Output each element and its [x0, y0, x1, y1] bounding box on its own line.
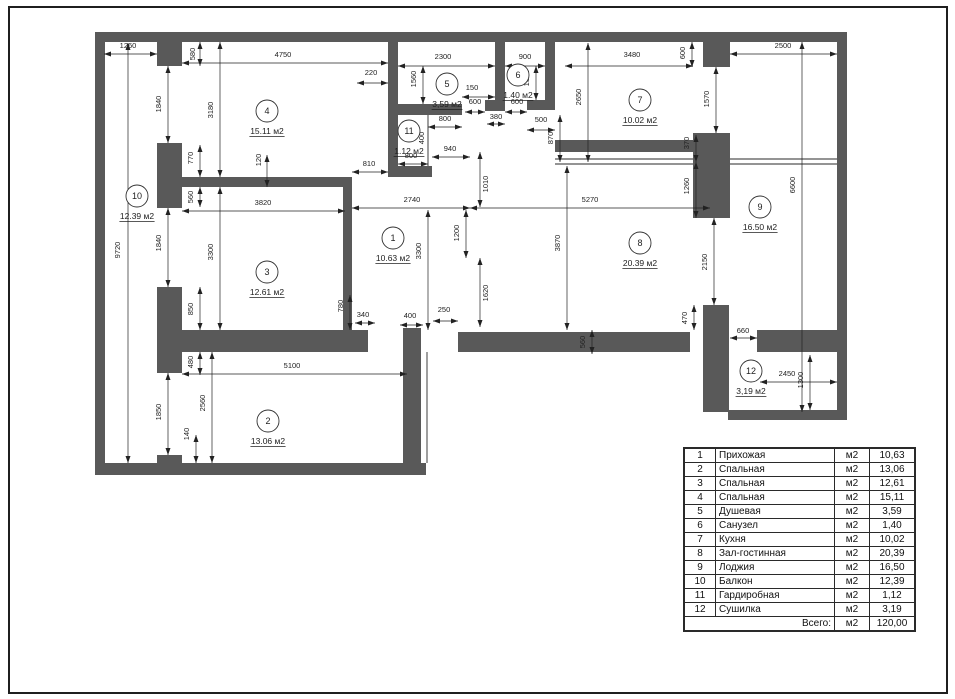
dimension-label: 2740 [404, 195, 421, 204]
room-area-label: 20.39 м2 [623, 258, 657, 268]
dimension-label: 6600 [788, 177, 797, 194]
room-name-cell: Гардиробная [716, 589, 835, 603]
legend-total-unit: м2 [835, 617, 870, 632]
room-number: 1 [390, 233, 395, 243]
dimension-label: 220 [365, 68, 378, 77]
room-unit-cell: м2 [835, 477, 870, 491]
dimension-label: 9720 [113, 242, 122, 259]
dimension-label: 780 [336, 300, 345, 313]
dimension-label: 600 [678, 47, 687, 60]
dimension-label: 3300 [206, 244, 215, 261]
room-unit-cell: м2 [835, 505, 870, 519]
room-name-cell: Балкон [716, 575, 835, 589]
room-area-label: 10.63 м2 [376, 253, 410, 263]
room-number: 7 [637, 95, 642, 105]
dimension-label: 340 [357, 310, 370, 319]
room-number-cell: 4 [684, 491, 716, 505]
dimension-label: 2650 [574, 89, 583, 106]
dimension-label: 870 [546, 132, 555, 145]
room-number: 9 [757, 202, 762, 212]
dimension-label: 600 [469, 97, 482, 106]
room-unit-cell: м2 [835, 561, 870, 575]
room-number: 6 [515, 70, 520, 80]
room-number-cell: 9 [684, 561, 716, 575]
wall [693, 133, 730, 218]
dimension-label: 480 [186, 356, 195, 369]
dimension-label: 3300 [414, 243, 423, 260]
wall [95, 32, 847, 42]
dimension-label: 470 [680, 312, 689, 325]
table-row: 9Лоджиям216,50 [684, 561, 915, 575]
dimension-label: 5270 [582, 195, 599, 204]
dimension-label: 3820 [255, 198, 272, 207]
dimension-label: 850 [186, 303, 195, 316]
wall [458, 332, 690, 352]
wall [95, 32, 105, 475]
dimension-label: 250 [438, 305, 451, 314]
room-area-label: 3,59 м2 [432, 99, 462, 109]
table-row: 11Гардиробнаям21,12 [684, 589, 915, 603]
room-area-label: 12.39 м2 [120, 211, 154, 221]
dimension-label: 3870 [553, 235, 562, 252]
room-number: 10 [132, 191, 142, 201]
dimension-label: 2150 [700, 254, 709, 271]
room-number: 4 [264, 106, 269, 116]
room-number-cell: 10 [684, 575, 716, 589]
room-unit-cell: м2 [835, 519, 870, 533]
dimension-label: 120 [254, 154, 263, 167]
table-row: 3Спальнаям212,61 [684, 477, 915, 491]
table-row: 5Душеваям23,59 [684, 505, 915, 519]
room-name-cell: Зал-гостинная [716, 547, 835, 561]
dimension-label: 4750 [275, 50, 292, 59]
wall [388, 166, 432, 177]
room-marker: 820.39 м2 [622, 232, 657, 269]
dimension-label: 1560 [409, 71, 418, 88]
room-number: 11 [404, 126, 413, 136]
room-unit-cell: м2 [835, 463, 870, 477]
room-name-cell: Сушилка [716, 603, 835, 617]
table-row: 1Прихожаям210,63 [684, 448, 915, 463]
room-area-label: 10.02 м2 [623, 115, 657, 125]
wall [703, 42, 730, 67]
room-number-cell: 5 [684, 505, 716, 519]
room-name-cell: Спальная [716, 491, 835, 505]
room-number-cell: 3 [684, 477, 716, 491]
room-number-cell: 6 [684, 519, 716, 533]
room-area-cell: 16,50 [870, 561, 916, 575]
room-marker: 53,59 м2 [432, 73, 463, 110]
room-area-cell: 13,06 [870, 463, 916, 477]
wall [95, 463, 426, 475]
dimension-label: 900 [519, 52, 532, 61]
room-name-cell: Прихожая [716, 448, 835, 463]
room-marker: 312.61 м2 [249, 261, 284, 298]
dimension-label: 370 [682, 137, 691, 150]
wall [157, 330, 368, 352]
dimension-label: 560 [186, 191, 195, 204]
dimension-label: 580 [188, 48, 197, 61]
room-unit-cell: м2 [835, 575, 870, 589]
dimension-label: 2500 [775, 41, 792, 50]
room-marker: 415.11 м2 [249, 100, 284, 137]
wall [545, 35, 555, 110]
room-number: 3 [264, 267, 269, 277]
room-name-cell: Душевая [716, 505, 835, 519]
dimension-label: 5100 [284, 361, 301, 370]
dimension-label: 500 [535, 115, 548, 124]
room-area-label: 1.12 м2 [394, 146, 424, 156]
room-area-label: 3,19 м2 [736, 386, 766, 396]
room-number: 8 [637, 238, 642, 248]
table-row: 10Балконм212,39 [684, 575, 915, 589]
dimension-label: 2560 [198, 395, 207, 412]
dimension-label: 940 [444, 144, 457, 153]
wall [157, 143, 182, 208]
room-name-cell: Спальная [716, 477, 835, 491]
room-area-cell: 12,61 [870, 477, 916, 491]
room-area-label: 15.11 м2 [250, 126, 284, 136]
table-row: 4Спальнаям215,11 [684, 491, 915, 505]
room-area-label: 16.50 м2 [743, 222, 777, 232]
dimension-label: 770 [186, 152, 195, 165]
table-row: 12Сушилкам23,19 [684, 603, 915, 617]
legend-total-area: 120,00 [870, 617, 916, 632]
floor-plan-page: 1260580475097201840318077012081038205601… [0, 0, 955, 699]
dimension-label: 150 [466, 83, 479, 92]
room-marker: 213.06 м2 [250, 410, 285, 447]
legend-total-label: Всего: [684, 617, 835, 632]
room-number-cell: 2 [684, 463, 716, 477]
room-unit-cell: м2 [835, 589, 870, 603]
room-area-cell: 10,63 [870, 448, 916, 463]
dimension-label: 1260 [120, 41, 137, 50]
table-row: 6Санузелм21,40 [684, 519, 915, 533]
room-number: 12 [746, 366, 756, 376]
room-name-cell: Кухня [716, 533, 835, 547]
room-name-cell: Спальная [716, 463, 835, 477]
room-marker: 710.02 м2 [622, 89, 657, 126]
room-area-label: 1.40 м2 [503, 90, 533, 100]
room-area-label: 12.61 м2 [250, 287, 284, 297]
dimension-label: 3480 [624, 50, 641, 59]
room-number: 5 [444, 79, 449, 89]
dimension-label: 1850 [154, 404, 163, 421]
room-number-cell: 1 [684, 448, 716, 463]
room-name-cell: Лоджия [716, 561, 835, 575]
room-marker: 1012.39 м2 [119, 185, 154, 222]
dimension-label: 1300 [796, 372, 805, 389]
legend-table: 1Прихожаям210,632Спальнаям213,063Спальна… [683, 447, 916, 632]
dimension-label: 660 [737, 326, 750, 335]
room-number-cell: 8 [684, 547, 716, 561]
dimension-label: 1010 [481, 176, 490, 193]
room-unit-cell: м2 [835, 603, 870, 617]
room-marker: 916.50 м2 [742, 196, 777, 233]
room-unit-cell: м2 [835, 491, 870, 505]
room-marker: 123,19 м2 [736, 360, 767, 397]
table-row: 2Спальнаям213,06 [684, 463, 915, 477]
room-marker: 110.63 м2 [375, 227, 410, 264]
dimension-label: 1840 [154, 235, 163, 252]
room-number-cell: 12 [684, 603, 716, 617]
dimension-label: 400 [404, 311, 417, 320]
dimension-label: 1620 [481, 285, 490, 302]
wall [703, 305, 729, 412]
room-area-cell: 3,19 [870, 603, 916, 617]
room-area-cell: 20,39 [870, 547, 916, 561]
legend-table-body: 1Прихожаям210,632Спальнаям213,063Спальна… [684, 448, 915, 617]
dimension-label: 140 [182, 428, 191, 441]
room-area-cell: 15,11 [870, 491, 916, 505]
room-unit-cell: м2 [835, 448, 870, 463]
dimension-label: 800 [439, 114, 452, 123]
wall [157, 42, 182, 66]
room-number-cell: 11 [684, 589, 716, 603]
room-area-label: 13.06 м2 [251, 436, 285, 446]
dimension-label: 810 [363, 159, 376, 168]
room-unit-cell: м2 [835, 533, 870, 547]
wall [555, 140, 697, 152]
room-area-cell: 12,39 [870, 575, 916, 589]
room-name-cell: Санузел [716, 519, 835, 533]
dimension-label: 560 [578, 336, 587, 349]
room-area-cell: 1,40 [870, 519, 916, 533]
table-row: 7Кухням210,02 [684, 533, 915, 547]
dimension-label: 380 [490, 112, 503, 121]
dimension-label: 2450 [779, 369, 796, 378]
wall [403, 328, 421, 475]
room-area-cell: 10,02 [870, 533, 916, 547]
dimension-label: 1570 [702, 91, 711, 108]
table-row: 8Зал-гостиннаям220,39 [684, 547, 915, 561]
legend-total-row: Всего: м2 120,00 [684, 617, 915, 632]
room-unit-cell: м2 [835, 547, 870, 561]
room-number-cell: 7 [684, 533, 716, 547]
dimension-label: 3180 [206, 102, 215, 119]
wall [728, 410, 847, 420]
dimension-label: 1260 [682, 178, 691, 195]
wall [757, 330, 837, 352]
room-area-cell: 3,59 [870, 505, 916, 519]
wall [157, 455, 182, 463]
dimension-label: 1200 [452, 225, 461, 242]
dimension-label: 1840 [154, 96, 163, 113]
room-area-cell: 1,12 [870, 589, 916, 603]
dimension-label: 2300 [435, 52, 452, 61]
wall [837, 32, 847, 420]
room-number: 2 [265, 416, 270, 426]
